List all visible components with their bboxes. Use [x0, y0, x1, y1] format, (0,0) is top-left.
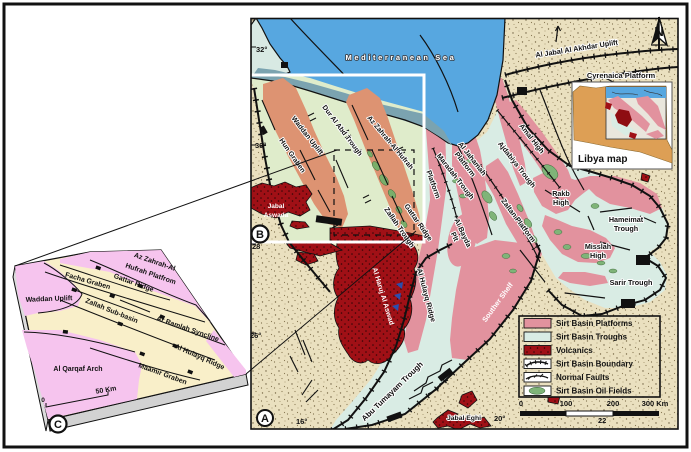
- svg-text:Aswada: Aswada: [264, 212, 289, 219]
- svg-text:0: 0: [41, 397, 45, 404]
- svg-text:300 Km: 300 Km: [642, 399, 669, 408]
- svg-text:Cyrenaica Platform: Cyrenaica Platform: [587, 71, 656, 80]
- svg-text:20°: 20°: [494, 414, 505, 423]
- svg-text:Jabal: Jabal: [268, 203, 285, 210]
- svg-text:N: N: [654, 24, 663, 39]
- svg-text:30°: 30°: [255, 141, 266, 150]
- svg-text:Sirt Basin Troughs: Sirt Basin Troughs: [556, 333, 628, 342]
- svg-text:Mediterranean Sea: Mediterranean Sea: [346, 53, 457, 62]
- svg-text:Libya map: Libya map: [578, 154, 627, 165]
- svg-text:A: A: [261, 413, 269, 425]
- svg-text:Normal Faults: Normal Faults: [556, 373, 610, 382]
- svg-text:0: 0: [519, 399, 523, 408]
- svg-text:200: 200: [607, 399, 620, 408]
- svg-text:Jabal Eghi: Jabal Eghi: [447, 415, 481, 422]
- svg-text:Al Qarqaf Arch: Al Qarqaf Arch: [53, 366, 102, 373]
- svg-text:22: 22: [598, 416, 606, 425]
- svg-text:32°: 32°: [256, 45, 267, 54]
- svg-text:C: C: [54, 419, 62, 431]
- svg-text:B: B: [256, 229, 264, 241]
- svg-text:16°: 16°: [296, 417, 307, 426]
- svg-text:Volcanics: Volcanics: [556, 346, 593, 355]
- svg-text:100: 100: [560, 399, 573, 408]
- svg-text:RakbHigh: RakbHigh: [552, 189, 570, 207]
- svg-text:Sirt Basin Boundary: Sirt Basin Boundary: [556, 360, 633, 369]
- svg-text:Sirt Basin Oil Fields: Sirt Basin Oil Fields: [556, 387, 632, 396]
- svg-text:Sarir Trough: Sarir Trough: [610, 278, 653, 287]
- svg-text:Sirt Basin Platforms: Sirt Basin Platforms: [556, 319, 633, 328]
